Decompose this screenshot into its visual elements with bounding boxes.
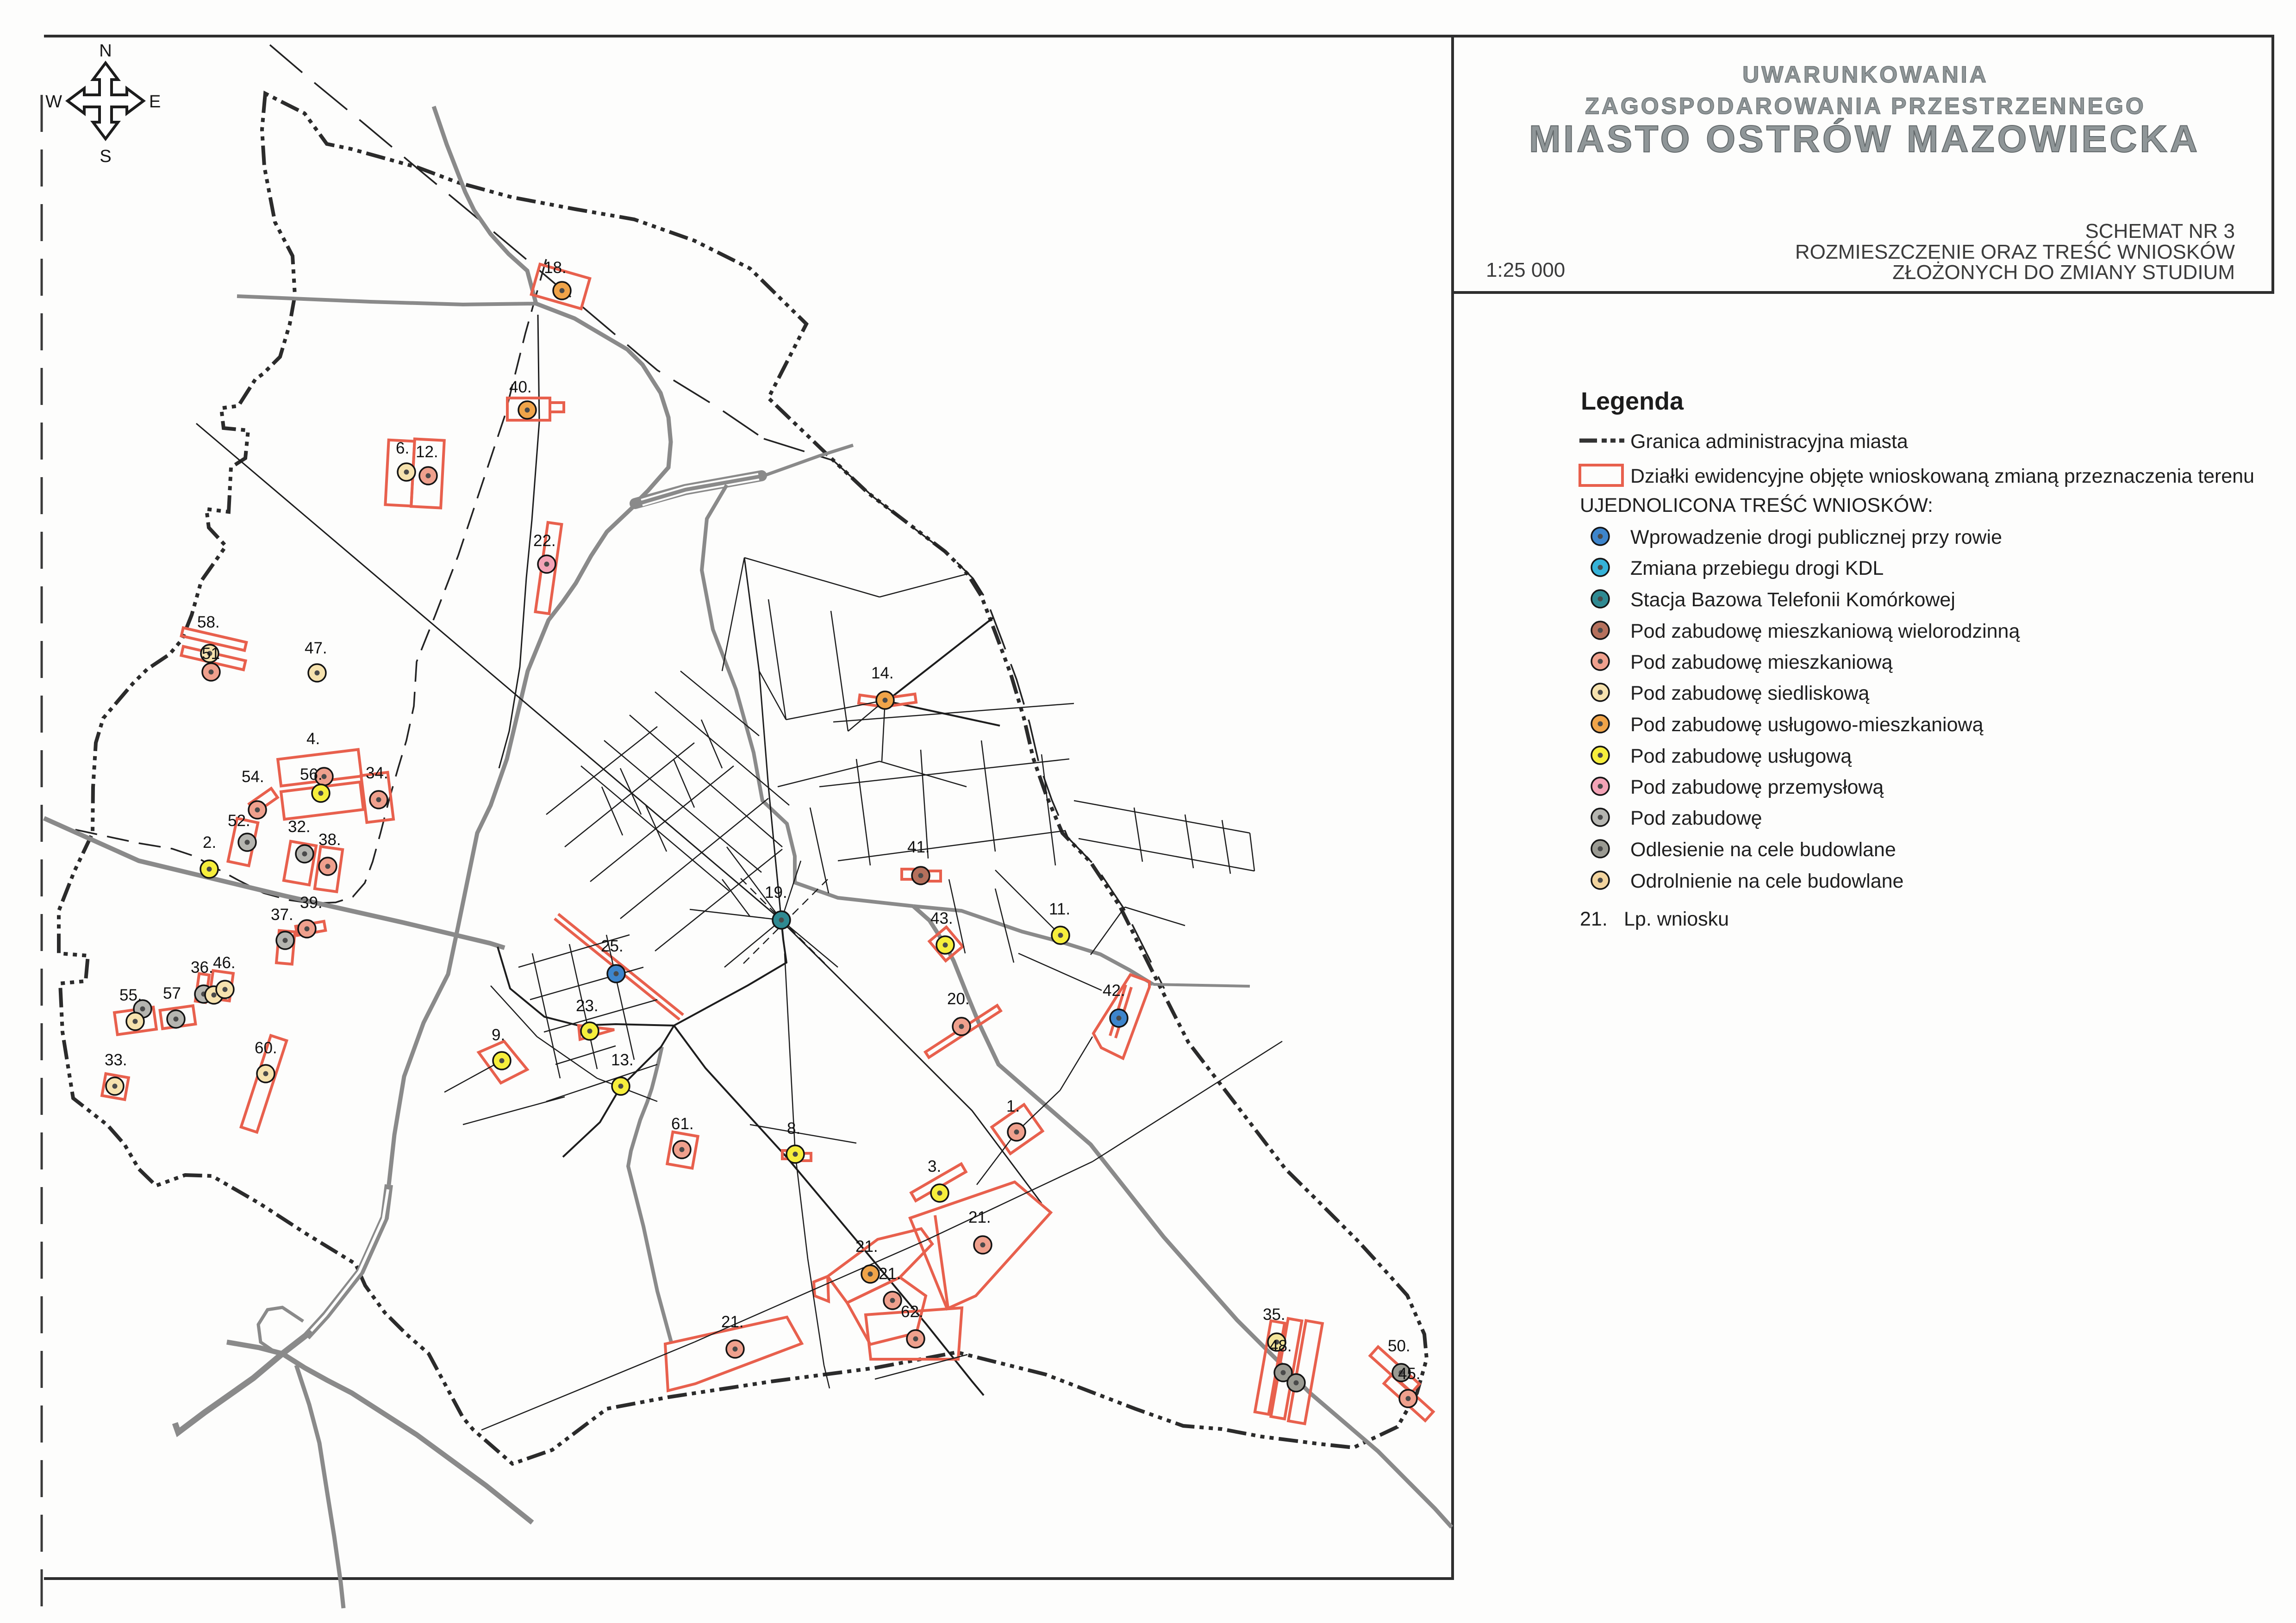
svg-text:Działki ewidencyjne objęte wni: Działki ewidencyjne objęte wnioskowaną z… xyxy=(1630,465,2254,487)
svg-text:12.: 12. xyxy=(416,443,438,461)
svg-text:21.: 21. xyxy=(968,1208,991,1226)
svg-text:UJEDNOLICONA TREŚĆ WNIOSKÓW:: UJEDNOLICONA TREŚĆ WNIOSKÓW: xyxy=(1580,494,1933,516)
svg-text:57: 57 xyxy=(163,984,181,1002)
svg-text:Wprowadzenie drogi publicznej: Wprowadzenie drogi publicznej przy rowie xyxy=(1630,526,2002,548)
svg-text:21.: 21. xyxy=(721,1313,744,1331)
svg-text:Pod zabudowę mieszkaniową: Pod zabudowę mieszkaniową xyxy=(1630,651,1893,673)
svg-text:36.: 36. xyxy=(191,958,213,976)
svg-text:48.: 48. xyxy=(1269,1337,1292,1355)
svg-text:21.: 21. xyxy=(1580,908,1608,930)
svg-text:14.: 14. xyxy=(871,664,894,682)
svg-text:2.: 2. xyxy=(203,833,216,852)
svg-text:Pod zabudowę usługowo-mieszkan: Pod zabudowę usługowo-mieszkaniową xyxy=(1630,714,1984,736)
svg-text:Odlesienie na cele budowlane: Odlesienie na cele budowlane xyxy=(1630,839,1896,861)
svg-text:1:25 000: 1:25 000 xyxy=(1486,259,1565,281)
svg-text:13.: 13. xyxy=(611,1051,634,1069)
svg-text:6.: 6. xyxy=(396,439,409,457)
svg-text:55.: 55. xyxy=(119,986,142,1004)
svg-text:Pod zabudowę siedliskową: Pod zabudowę siedliskową xyxy=(1630,682,1869,704)
svg-text:Zmiana przebiegu drogi KDL: Zmiana przebiegu drogi KDL xyxy=(1630,557,1884,579)
svg-text:Pod zabudowę usługową: Pod zabudowę usługową xyxy=(1630,745,1852,767)
svg-text:21.: 21. xyxy=(855,1237,878,1256)
svg-text:Lp. wniosku: Lp. wniosku xyxy=(1624,908,1729,930)
svg-text:46.: 46. xyxy=(213,954,236,972)
svg-text:Odrolnienie na cele budowlane: Odrolnienie na cele budowlane xyxy=(1630,870,1903,892)
svg-text:UWARUNKOWANIA: UWARUNKOWANIA xyxy=(1742,62,1989,87)
svg-text:22.: 22. xyxy=(533,532,556,550)
svg-text:9.: 9. xyxy=(492,1026,505,1044)
svg-text:1.: 1. xyxy=(1006,1097,1020,1115)
svg-text:25.: 25. xyxy=(601,937,624,955)
svg-text:38.: 38. xyxy=(318,831,341,849)
svg-text:37.: 37. xyxy=(271,906,293,924)
svg-text:34.: 34. xyxy=(366,764,388,782)
svg-text:3.: 3. xyxy=(928,1157,941,1175)
svg-text:56.: 56. xyxy=(300,765,323,784)
svg-text:Pod zabudowę: Pod zabudowę xyxy=(1630,807,1762,829)
svg-text:21.: 21. xyxy=(879,1265,901,1283)
svg-text:50.: 50. xyxy=(1388,1337,1410,1355)
svg-text:19.: 19. xyxy=(765,883,787,902)
svg-text:8.: 8. xyxy=(787,1119,800,1138)
svg-text:43.: 43. xyxy=(930,909,953,927)
svg-text:ROZMIESZCZENIE ORAZ TREŚĆ WNIO: ROZMIESZCZENIE ORAZ TREŚĆ WNIOSKÓW xyxy=(1795,240,2235,263)
svg-text:35.: 35. xyxy=(1263,1306,1285,1324)
svg-text:W: W xyxy=(45,92,62,112)
svg-text:47.: 47. xyxy=(305,639,327,657)
svg-text:32.: 32. xyxy=(288,818,311,836)
svg-text:54.: 54. xyxy=(242,768,264,786)
svg-text:11.: 11. xyxy=(1049,900,1070,918)
svg-text:Stacja Bazowa Telefonii Komórk: Stacja Bazowa Telefonii Komórkowej xyxy=(1630,589,1955,611)
svg-text:23.: 23. xyxy=(576,997,599,1015)
svg-text:58.: 58. xyxy=(197,613,220,631)
svg-text:61.: 61. xyxy=(671,1115,694,1133)
svg-text:45.: 45. xyxy=(1398,1365,1421,1383)
svg-text:N: N xyxy=(99,41,112,61)
svg-text:Pod zabudowę mieszkaniową wiel: Pod zabudowę mieszkaniową wielorodzinną xyxy=(1630,620,2020,642)
svg-text:SCHEMAT NR 3: SCHEMAT NR 3 xyxy=(2085,220,2235,243)
svg-text:51: 51 xyxy=(202,645,220,663)
svg-text:4.: 4. xyxy=(306,730,320,748)
svg-text:ZŁOŻONYCH DO ZMIANY STUDIUM: ZŁOŻONYCH DO ZMIANY STUDIUM xyxy=(1892,261,2235,284)
svg-text:MIASTO OSTRÓW MAZOWIECKA: MIASTO OSTRÓW MAZOWIECKA xyxy=(1529,118,2200,160)
svg-text:60.: 60. xyxy=(255,1039,277,1057)
svg-text:52.: 52. xyxy=(228,812,250,830)
svg-text:41.: 41. xyxy=(907,838,930,856)
svg-text:ZAGOSPODAROWANIA PRZESTRZENNEG: ZAGOSPODAROWANIA PRZESTRZENNEGO xyxy=(1585,93,2146,119)
svg-text:S: S xyxy=(100,147,111,166)
svg-text:Granica administracyjna miasta: Granica administracyjna miasta xyxy=(1630,430,1908,453)
svg-text:E: E xyxy=(149,92,161,112)
svg-text:40.: 40. xyxy=(509,378,532,396)
svg-text:Legenda: Legenda xyxy=(1581,387,1684,415)
svg-text:42.: 42. xyxy=(1103,982,1125,1000)
svg-text:20.: 20. xyxy=(947,990,970,1008)
svg-text:33.: 33. xyxy=(105,1051,127,1069)
svg-text:Pod zabudowę przemysłową: Pod zabudowę przemysłową xyxy=(1630,776,1884,798)
svg-text:39.: 39. xyxy=(300,894,323,912)
svg-text:62.: 62. xyxy=(901,1303,923,1321)
svg-text:18.: 18. xyxy=(544,259,567,277)
